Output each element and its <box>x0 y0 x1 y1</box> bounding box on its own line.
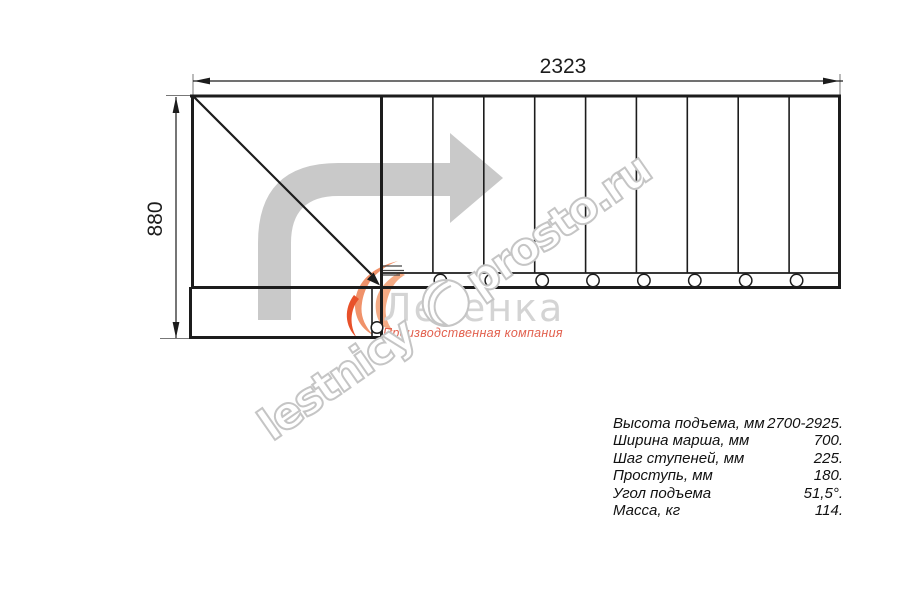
watermark-left-text: lestnicy <box>249 307 425 451</box>
diagonal-arrowhead-icon <box>367 273 380 286</box>
dimension-width-label: 2323 <box>540 55 587 78</box>
spec-value: 700. <box>814 432 843 449</box>
spec-row-angle: Угол подъема 51,5°. <box>613 485 843 502</box>
spec-label: Высота подъема, мм <box>613 415 765 432</box>
spec-row-width: Ширина марша, мм 700. <box>613 432 843 449</box>
logo-brand-text: Лесенка <box>383 286 564 330</box>
spec-row-tread: Проступь, мм 180. <box>613 467 843 484</box>
spec-label: Ширина марша, мм <box>613 432 749 449</box>
dim-arrow-right-icon <box>823 78 839 85</box>
dim-arrow-left-icon <box>194 78 210 85</box>
spec-label: Шаг ступеней, мм <box>613 450 744 467</box>
dimension-top: 2323 <box>193 55 843 96</box>
dimension-height-label: 880 <box>144 201 167 236</box>
spec-label: Проступь, мм <box>613 467 713 484</box>
dim-arrow-down-icon <box>173 322 180 338</box>
spec-value: 51,5°. <box>804 485 843 502</box>
spec-row-height: Высота подъема, мм 2700-2925. <box>613 415 843 432</box>
dim-arrow-up-icon <box>173 97 180 113</box>
spec-value: 180. <box>814 467 843 484</box>
stair-drawing-page: 2323 880 <box>0 0 900 600</box>
spec-value: 114. <box>815 502 843 519</box>
spec-label: Угол подъема <box>613 485 711 502</box>
spec-value: 2700-2925. <box>767 415 843 432</box>
spec-value: 225. <box>814 450 843 467</box>
spec-label: Масса, кг <box>613 502 680 519</box>
spec-row-step-pitch: Шаг ступеней, мм 225. <box>613 450 843 467</box>
spec-row-mass: Масса, кг 114. <box>613 502 843 519</box>
spec-table: Высота подъема, мм 2700-2925. Ширина мар… <box>613 415 843 519</box>
dimension-left: 880 <box>144 96 191 339</box>
